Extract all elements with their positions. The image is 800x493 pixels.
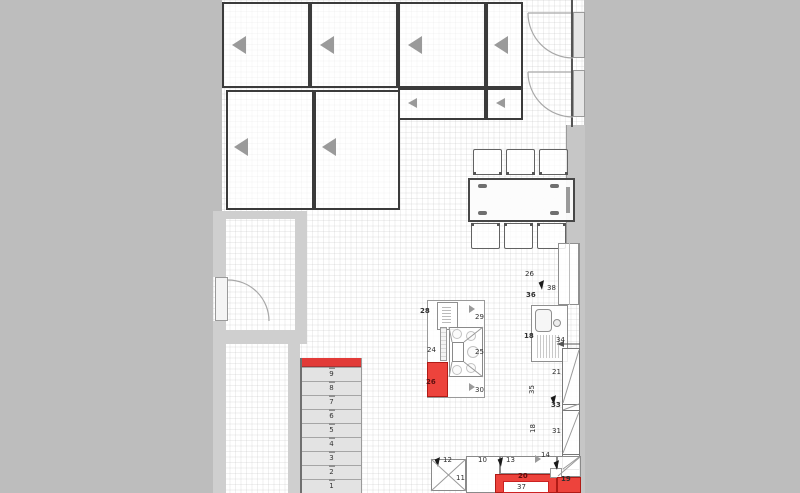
stair-steps: 987654321 — [302, 367, 361, 493]
appliance-label-lines — [442, 307, 451, 325]
hood-inner — [452, 342, 464, 362]
sink-basin — [535, 309, 552, 332]
stair-step-8: 8 — [302, 381, 361, 395]
unit-divider — [562, 410, 580, 411]
stair-step-6: 6 — [302, 409, 361, 423]
table-edge-bar — [566, 187, 570, 213]
fridge-door-top[interactable] — [573, 12, 585, 58]
door-direction-icon — [322, 138, 336, 156]
chair[interactable] — [473, 149, 502, 175]
door-direction-icon — [408, 36, 422, 54]
table-mark — [550, 211, 559, 215]
door-direction-icon — [408, 98, 417, 108]
burner-icon — [466, 363, 476, 373]
direction-marker-icon — [469, 383, 475, 391]
wall-vertical-stairs — [288, 344, 300, 493]
selected-unit-19[interactable] — [557, 477, 581, 493]
stair-step-2: 2 — [302, 465, 361, 479]
wall-horizontal-top — [213, 211, 307, 219]
door-direction-icon — [232, 36, 246, 54]
chair[interactable] — [506, 149, 535, 175]
wall-left-above-door — [213, 219, 226, 277]
chair[interactable] — [539, 149, 568, 175]
wall-left-below-door — [213, 321, 226, 330]
unit-divider — [562, 454, 580, 455]
wall-left-lower — [213, 344, 226, 493]
stair-step-1: 1 — [302, 479, 361, 493]
stair-landing-selected — [302, 358, 361, 367]
burner-icon — [452, 329, 462, 339]
stair-step-4: 4 — [302, 437, 361, 451]
background-patch — [213, 0, 222, 211]
dining-table[interactable] — [468, 178, 575, 222]
floor-plan-canvas: 987654321 282924252630263836183421353318… — [0, 0, 800, 493]
island-rail[interactable] — [440, 327, 447, 361]
stair-step-9: 9 — [302, 367, 361, 381]
burner-icon — [466, 331, 476, 341]
stair-step-7: 7 — [302, 395, 361, 409]
staircase[interactable]: 987654321 — [300, 358, 362, 493]
door-direction-icon — [494, 36, 508, 54]
cabinet-divider — [569, 243, 570, 305]
table-mark — [478, 184, 487, 188]
direction-marker-icon — [535, 455, 541, 463]
direction-marker-icon — [469, 305, 475, 313]
sink-drainer — [537, 335, 560, 358]
unit-divider — [562, 404, 580, 405]
chair[interactable] — [504, 223, 533, 249]
wall-horizontal-mid — [213, 330, 307, 344]
door-leaf[interactable] — [215, 277, 228, 321]
door-direction-icon — [320, 36, 334, 54]
table-mark — [550, 184, 559, 188]
faucet-icon — [553, 319, 561, 327]
stair-step-5: 5 — [302, 423, 361, 437]
fridge-door-bottom[interactable] — [573, 70, 585, 117]
chair[interactable] — [471, 223, 500, 249]
burner-icon — [467, 346, 479, 358]
door-direction-icon — [496, 98, 505, 108]
tall-units-column[interactable] — [562, 348, 580, 470]
selected-island-unit[interactable] — [427, 362, 448, 397]
island-appliance[interactable] — [437, 302, 458, 330]
table-mark — [478, 211, 487, 215]
selected-run-inner — [503, 481, 549, 493]
stair-step-3: 3 — [302, 451, 361, 465]
base-cabinet-13[interactable] — [500, 456, 557, 474]
burner-icon — [452, 365, 462, 375]
wall-vertical-mid — [295, 219, 307, 332]
door-direction-icon — [234, 138, 248, 156]
